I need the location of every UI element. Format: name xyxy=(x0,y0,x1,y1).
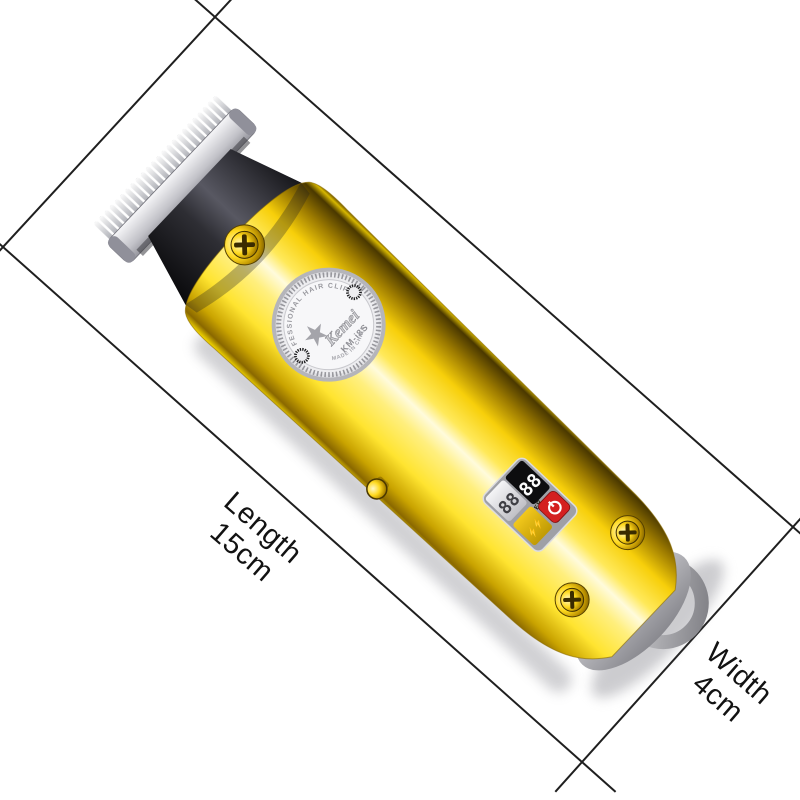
screw-cross-icon xyxy=(563,598,581,602)
clipper-product: PROFESSIONAL HAIR CLIPPER ★ Kemei KM-i8S… xyxy=(77,88,739,732)
product-dimension-figure: PROFESSIONAL HAIR CLIPPER ★ Kemei KM-i8S… xyxy=(0,0,800,800)
screw-cross-icon xyxy=(234,242,255,247)
screw-cross-icon xyxy=(619,530,637,534)
